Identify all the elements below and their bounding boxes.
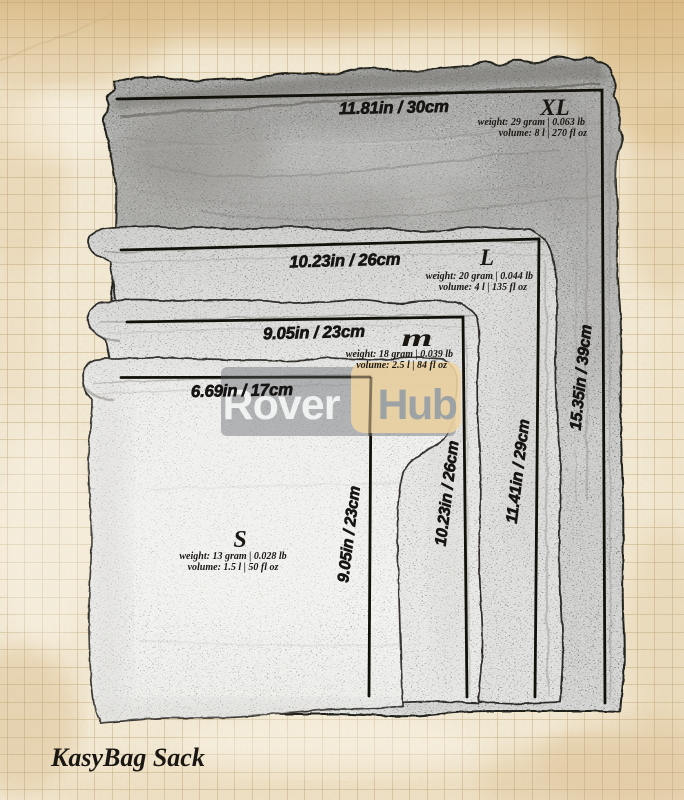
svg-text:volume: 4 l | 135 fl oz: volume: 4 l | 135 fl oz — [439, 282, 527, 293]
svg-text:volume: 1.5 l | 50 fl oz: volume: 1.5 l | 50 fl oz — [188, 562, 279, 573]
svg-text:weight: 29 gram | 0.063 lb: weight: 29 gram | 0.063 lb — [478, 117, 585, 128]
svg-text:weight: 20 gram | 0.044 lb: weight: 20 gram | 0.044 lb — [426, 271, 533, 282]
svg-text:11.81in / 30cm: 11.81in / 30cm — [339, 97, 449, 118]
svg-text:10.23in / 26cm: 10.23in / 26cm — [289, 250, 401, 272]
svg-text:Hub: Hub — [377, 381, 456, 429]
svg-text:volume: 2.5 l | 84 fl oz: volume: 2.5 l | 84 fl oz — [356, 360, 447, 371]
svg-text:weight: 13 gram | 0.028 lb: weight: 13 gram | 0.028 lb — [179, 551, 286, 562]
svg-text:9.05in / 23cm: 9.05in / 23cm — [263, 322, 366, 344]
svg-text:m: m — [402, 325, 433, 352]
svg-text:KasyBag Sack: KasyBag Sack — [50, 743, 205, 772]
svg-text:S: S — [233, 527, 246, 553]
svg-text:L: L — [479, 245, 494, 270]
svg-text:6.69in / 17cm: 6.69in / 17cm — [191, 380, 294, 401]
svg-text:weight: 18 gram | 0.039 lb: weight: 18 gram | 0.039 lb — [346, 349, 453, 360]
svg-text:volume: 8 l | 270 fl oz: volume: 8 l | 270 fl oz — [499, 128, 587, 139]
